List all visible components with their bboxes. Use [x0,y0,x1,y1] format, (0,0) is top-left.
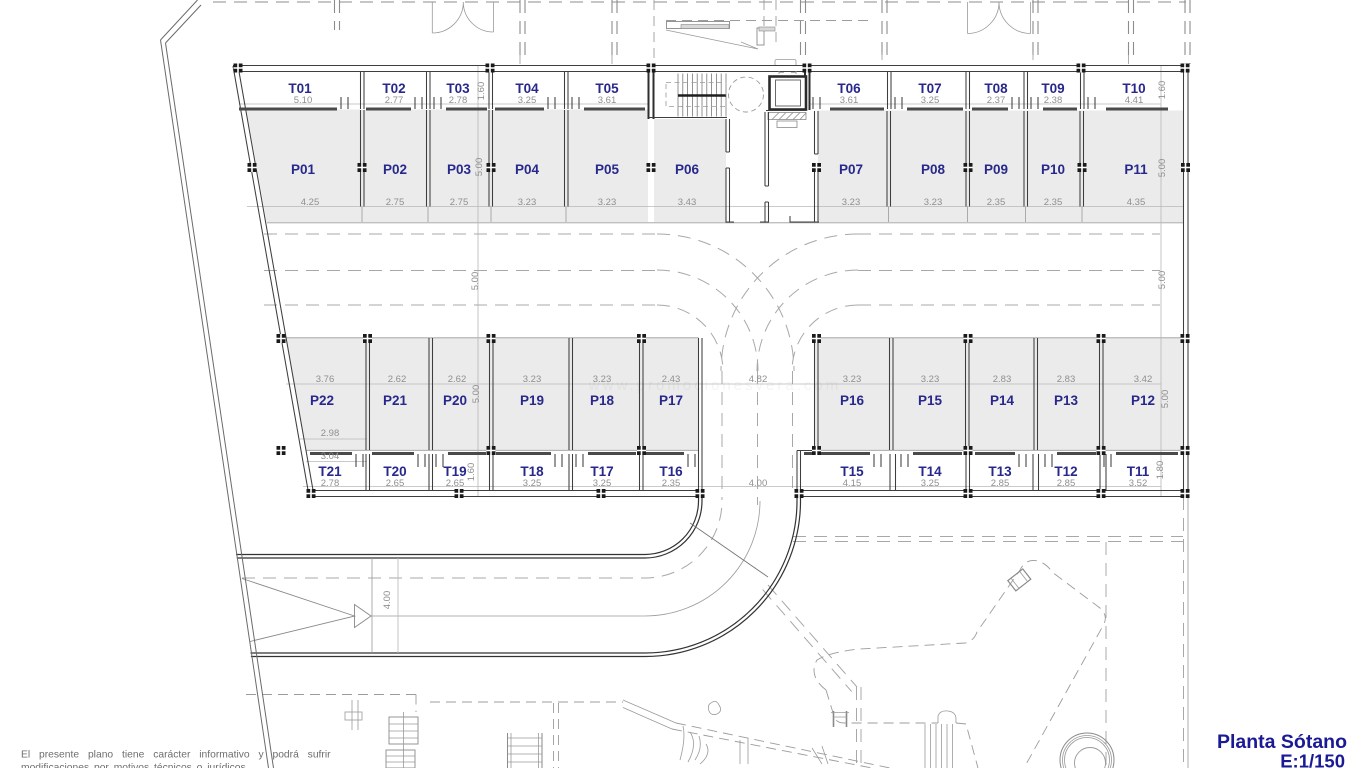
svg-text:T03: T03 [446,81,470,96]
svg-text:P20: P20 [443,393,467,408]
svg-text:T17: T17 [590,464,613,479]
svg-text:T12: T12 [1054,464,1077,479]
svg-text:P21: P21 [383,393,408,408]
svg-text:2.35: 2.35 [987,197,1006,208]
svg-text:T06: T06 [837,81,861,96]
svg-text:3.25: 3.25 [518,95,537,106]
svg-text:5.00: 5.00 [1157,271,1168,290]
svg-text:P04: P04 [515,162,540,177]
svg-text:3.76: 3.76 [316,374,335,385]
svg-text:E:1/150: E:1/150 [1280,751,1345,768]
svg-text:2.83: 2.83 [1057,374,1076,385]
svg-text:T20: T20 [383,464,406,479]
svg-text:P16: P16 [840,393,865,408]
svg-text:5.10: 5.10 [294,95,313,106]
svg-text:T15: T15 [840,464,864,479]
svg-text:2.77: 2.77 [385,95,404,106]
svg-text:P22: P22 [310,393,334,408]
svg-text:T10: T10 [1122,81,1145,96]
svg-text:3.25: 3.25 [523,478,542,489]
svg-text:T04: T04 [515,81,539,96]
svg-text:3.23: 3.23 [598,197,617,208]
svg-text:4.25: 4.25 [301,197,320,208]
svg-text:3.23: 3.23 [843,374,862,385]
svg-text:5.00: 5.00 [1157,159,1168,178]
svg-text:5.00: 5.00 [1160,390,1171,409]
svg-text:T16: T16 [659,464,683,479]
svg-text:T11: T11 [1127,464,1150,479]
svg-text:3.23: 3.23 [523,374,542,385]
svg-text:2.85: 2.85 [991,478,1010,489]
svg-text:P13: P13 [1054,393,1079,408]
svg-text:T07: T07 [918,81,941,96]
svg-text:2.78: 2.78 [321,478,340,489]
svg-text:5.00: 5.00 [474,158,485,177]
svg-text:P08: P08 [921,162,946,177]
svg-text:2.75: 2.75 [450,197,469,208]
svg-text:www.promocionesvera.com: www.promocionesvera.com [588,377,841,394]
svg-text:P18: P18 [590,393,615,408]
svg-text:2.35: 2.35 [1044,197,1063,208]
svg-text:2.65: 2.65 [446,478,465,489]
svg-text:4.41: 4.41 [1125,95,1144,106]
svg-text:3.25: 3.25 [921,478,940,489]
svg-text:3.61: 3.61 [598,95,617,106]
svg-text:1.80: 1.80 [1155,461,1166,480]
svg-text:3.25: 3.25 [593,478,612,489]
svg-text:2.98: 2.98 [321,428,340,439]
svg-text:5.00: 5.00 [471,385,482,404]
svg-text:2.75: 2.75 [386,197,405,208]
svg-text:El presente plano tiene caráct: El presente plano tiene carácter informa… [21,750,331,761]
svg-text:4.00: 4.00 [749,478,768,489]
svg-text:T14: T14 [918,464,942,479]
svg-text:3.04: 3.04 [321,451,340,462]
svg-text:P12: P12 [1131,393,1155,408]
svg-text:4.00: 4.00 [382,591,393,610]
svg-text:P10: P10 [1041,162,1065,177]
svg-text:4.15: 4.15 [843,478,862,489]
svg-text:T13: T13 [988,464,1012,479]
svg-text:3.25: 3.25 [921,95,940,106]
svg-text:2.62: 2.62 [388,374,407,385]
svg-text:P07: P07 [839,162,863,177]
svg-text:4.35: 4.35 [1127,197,1146,208]
svg-text:T09: T09 [1041,81,1064,96]
svg-text:1.60: 1.60 [1157,81,1168,100]
svg-text:P09: P09 [984,162,1008,177]
svg-text:2.65: 2.65 [386,478,405,489]
svg-text:5.00: 5.00 [470,272,481,291]
svg-text:P03: P03 [447,162,472,177]
svg-text:P15: P15 [918,393,943,408]
svg-text:3.52: 3.52 [1129,478,1148,489]
svg-text:1.60: 1.60 [476,82,487,101]
svg-text:P11: P11 [1124,162,1148,177]
svg-text:modificaciones por motivos téc: modificaciones por motivos técnicos o ju… [21,763,246,768]
svg-text:T08: T08 [984,81,1008,96]
svg-text:3.23: 3.23 [518,197,537,208]
svg-text:2.83: 2.83 [993,374,1012,385]
svg-text:2.78: 2.78 [449,95,468,106]
svg-text:T19: T19 [443,464,466,479]
svg-text:2.43: 2.43 [662,374,681,385]
svg-text:3.43: 3.43 [678,197,697,208]
svg-text:3.23: 3.23 [842,197,861,208]
svg-text:P05: P05 [595,162,620,177]
svg-text:P02: P02 [383,162,407,177]
svg-text:4.82: 4.82 [749,374,768,385]
svg-text:P19: P19 [520,393,544,408]
svg-text:P06: P06 [675,162,700,177]
svg-text:P17: P17 [659,393,683,408]
svg-text:3.61: 3.61 [840,95,859,106]
svg-text:1.60: 1.60 [466,463,477,482]
svg-text:2.38: 2.38 [1044,95,1063,106]
svg-text:T05: T05 [595,81,619,96]
svg-text:T02: T02 [382,81,405,96]
svg-text:2.85: 2.85 [1057,478,1076,489]
svg-text:3.23: 3.23 [921,374,940,385]
svg-text:P14: P14 [990,393,1015,408]
svg-text:2.62: 2.62 [448,374,467,385]
svg-text:3.42: 3.42 [1134,374,1153,385]
svg-text:T01: T01 [288,81,312,96]
svg-text:T21: T21 [318,464,342,479]
svg-text:T18: T18 [520,464,544,479]
svg-text:2.35: 2.35 [662,478,681,489]
svg-text:2.37: 2.37 [987,95,1006,106]
svg-text:3.23: 3.23 [924,197,943,208]
svg-text:P01: P01 [291,162,316,177]
svg-text:3.23: 3.23 [593,374,612,385]
